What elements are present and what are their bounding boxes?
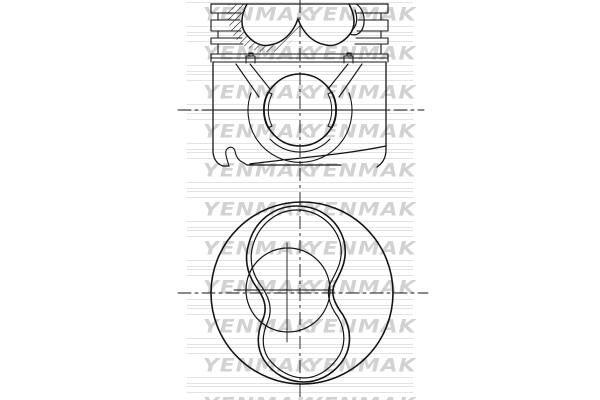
- piston-cross-section-view: [178, 4, 424, 167]
- bowl-rim-outer: [247, 206, 350, 382]
- piston-drawing-canvas: [0, 0, 600, 400]
- bowl-rim-right-outline: [349, 4, 364, 35]
- skirt-outline: [213, 62, 386, 167]
- pin-boss-walls: [236, 64, 362, 97]
- piston-technical-drawing: YENMAKYENMAKYENMAKYENMAKYENMAKYENMAKYENM…: [0, 0, 600, 400]
- skirt-notch-left: [226, 147, 247, 166]
- piston-top-view: [178, 202, 428, 384]
- bowl-center-crosshair: [234, 243, 334, 342]
